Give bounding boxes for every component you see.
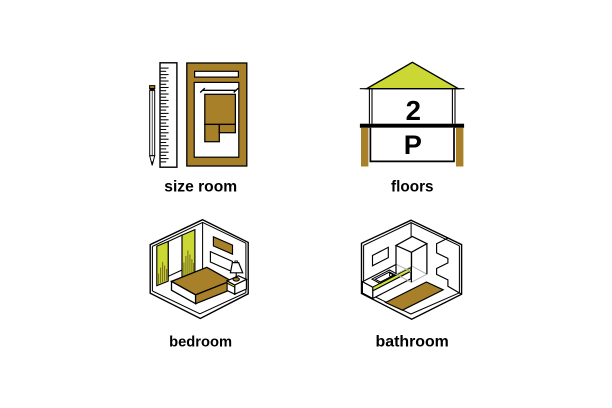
svg-text:2: 2 (406, 95, 421, 126)
svg-text:bathroom: bathroom (376, 334, 449, 351)
svg-text:bedroom: bedroom (169, 335, 232, 351)
svg-text:floors: floors (391, 179, 434, 196)
svg-text:P: P (404, 129, 422, 160)
svg-text:size room: size room (164, 179, 237, 196)
